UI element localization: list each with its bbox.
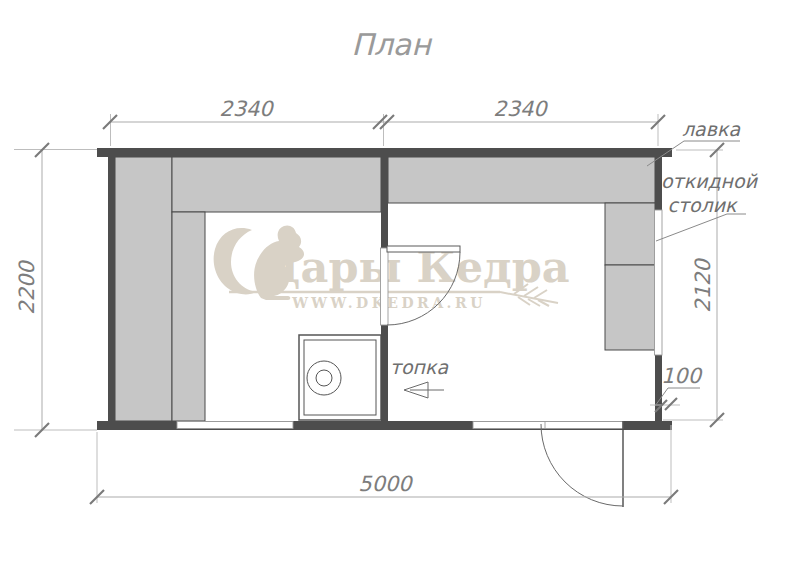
bench-room-top [388,157,655,203]
bench-room-side-lower [605,265,655,350]
dim-top-left: 2340 [219,97,274,121]
partition-door-opening [381,248,389,325]
stove-inner-box [304,340,376,415]
label-folding-table-line2: столик [667,194,738,216]
floor-plan-svg: План Дары Кедра WWW.DKEDRA.RU [0,0,800,565]
floor-plan-page: План Дары Кедра WWW.DKEDRA.RU [0,0,800,565]
door-opening-bottom [473,422,623,429]
dim-top-right: 2340 [493,97,548,121]
bench-sauna-top [172,157,381,212]
dim-left: 2200 [15,260,39,315]
label-bench: лавка [682,118,740,140]
bench-room-side-upper [605,203,655,265]
watermark-url: WWW.DKEDRA.RU [291,295,486,311]
folding-table-opening-right [655,210,663,355]
bench-sauna-step [172,212,205,421]
label-folding-table-line1: откидной [661,170,759,192]
bench-left-column [115,157,172,421]
wall-left [108,157,115,421]
dim-right: 2120 [691,258,715,313]
stove [299,335,381,420]
interior-door-leaf [387,246,460,252]
dim-overhang: 100 [661,364,703,388]
wall-top [97,148,672,157]
window-opening-bottom [177,422,293,429]
dim-bottom: 5000 [358,472,413,496]
partition-wall-lower [381,325,388,421]
partition-wall-upper [381,157,388,248]
label-furnace: топка [390,356,449,378]
page-title: План [351,27,432,62]
